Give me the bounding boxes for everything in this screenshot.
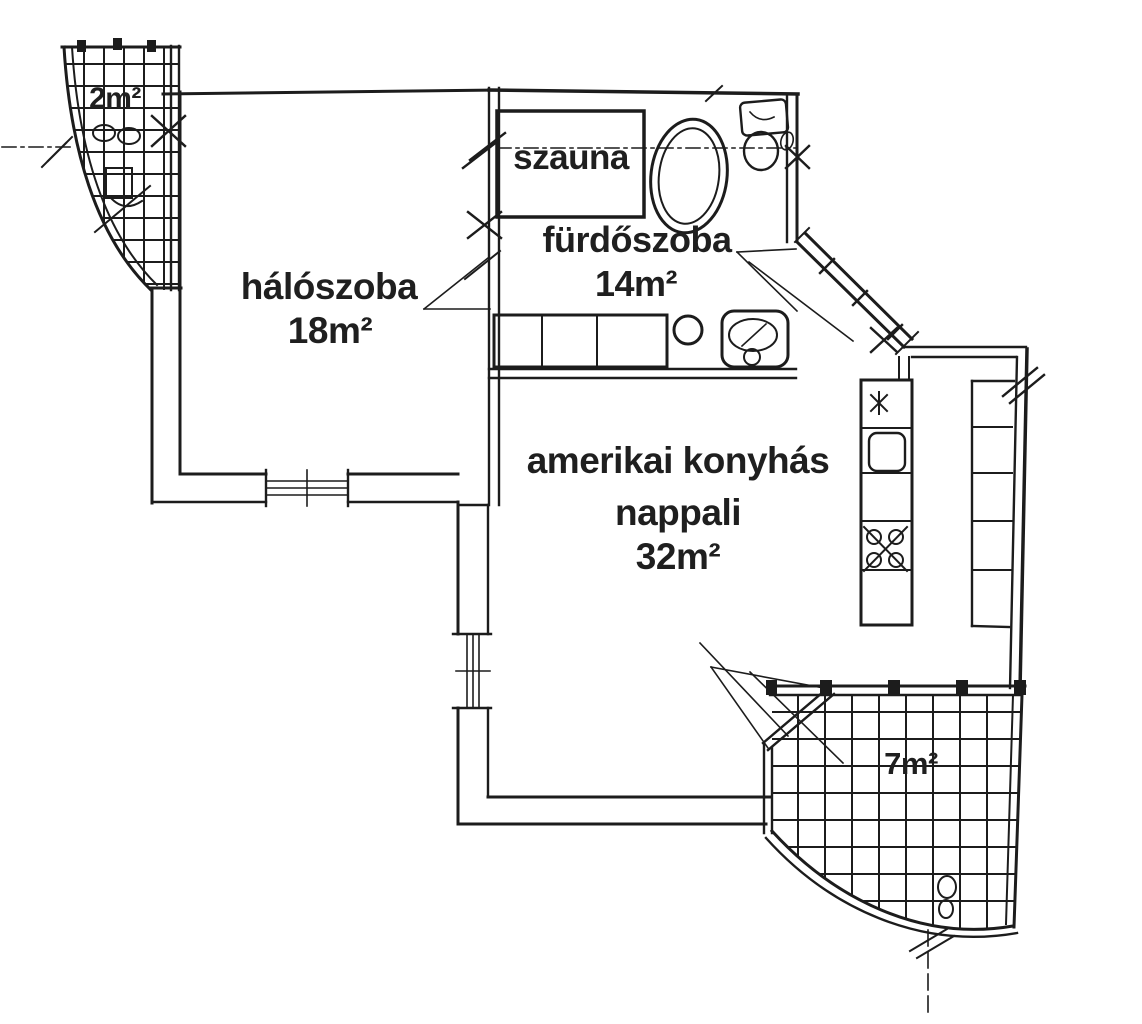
hallway-walls	[871, 328, 1027, 690]
bathroom-name: fürdőszoba	[543, 219, 732, 260]
wc-icon	[722, 311, 788, 367]
room-label-living-line1: amerikai konyhás	[527, 442, 830, 479]
balcony-chairs-icon	[93, 125, 140, 144]
room-label-large-balcony: 7m²	[884, 748, 938, 779]
kitchen-sink-icon	[869, 433, 905, 471]
room-label-bathroom: fürdőszoba	[543, 222, 732, 258]
living-room-name-line2: nappali	[615, 492, 741, 533]
large-balcony-grid	[770, 686, 1024, 940]
living-room-walls	[458, 502, 770, 824]
bedroom-window	[266, 470, 348, 506]
bathroom-area: 14m²	[595, 263, 677, 304]
large-balcony-area: 7m²	[884, 746, 938, 781]
room-label-bedroom-area: 18m²	[288, 312, 372, 349]
room-label-sauna: szauna	[513, 140, 629, 175]
room-label-living-area: 32m²	[636, 538, 720, 575]
stove-icon	[864, 527, 907, 571]
small-balcony	[60, 38, 185, 292]
kitchen-counter	[861, 380, 912, 625]
balcony-ornament-icon	[938, 876, 956, 918]
sauna-name: szauna	[513, 138, 629, 177]
living-room-name-line1: amerikai konyhás	[527, 440, 830, 481]
railing-post	[888, 680, 900, 695]
railing-post	[1014, 680, 1026, 695]
railing-post	[113, 38, 122, 50]
railing-post	[820, 680, 832, 695]
bedroom-name: hálószoba	[241, 266, 417, 307]
washbasin-icon	[674, 316, 702, 344]
small-balcony-area: 2m²	[89, 82, 141, 115]
living-room-window	[453, 634, 491, 708]
railing-post	[77, 40, 86, 52]
bedroom-area: 18m²	[288, 310, 372, 351]
balcony-door	[700, 643, 843, 763]
shelf-counter	[972, 381, 1014, 627]
railing-post	[766, 680, 777, 695]
room-label-bedroom: hálószoba	[241, 268, 417, 305]
room-label-living-line2: nappali	[615, 494, 741, 531]
vanity-counter	[494, 315, 667, 367]
room-label-small-balcony: 2m²	[89, 84, 141, 114]
room-label-bathroom-area: 14m²	[595, 266, 677, 302]
railing-post	[956, 680, 968, 695]
sparkle-icon	[871, 392, 887, 414]
floor-plan: 2m² hálószoba 18m² szauna fürdőszoba 14m…	[0, 0, 1142, 1024]
living-room-area: 32m²	[636, 536, 720, 577]
railing-post	[147, 40, 156, 52]
